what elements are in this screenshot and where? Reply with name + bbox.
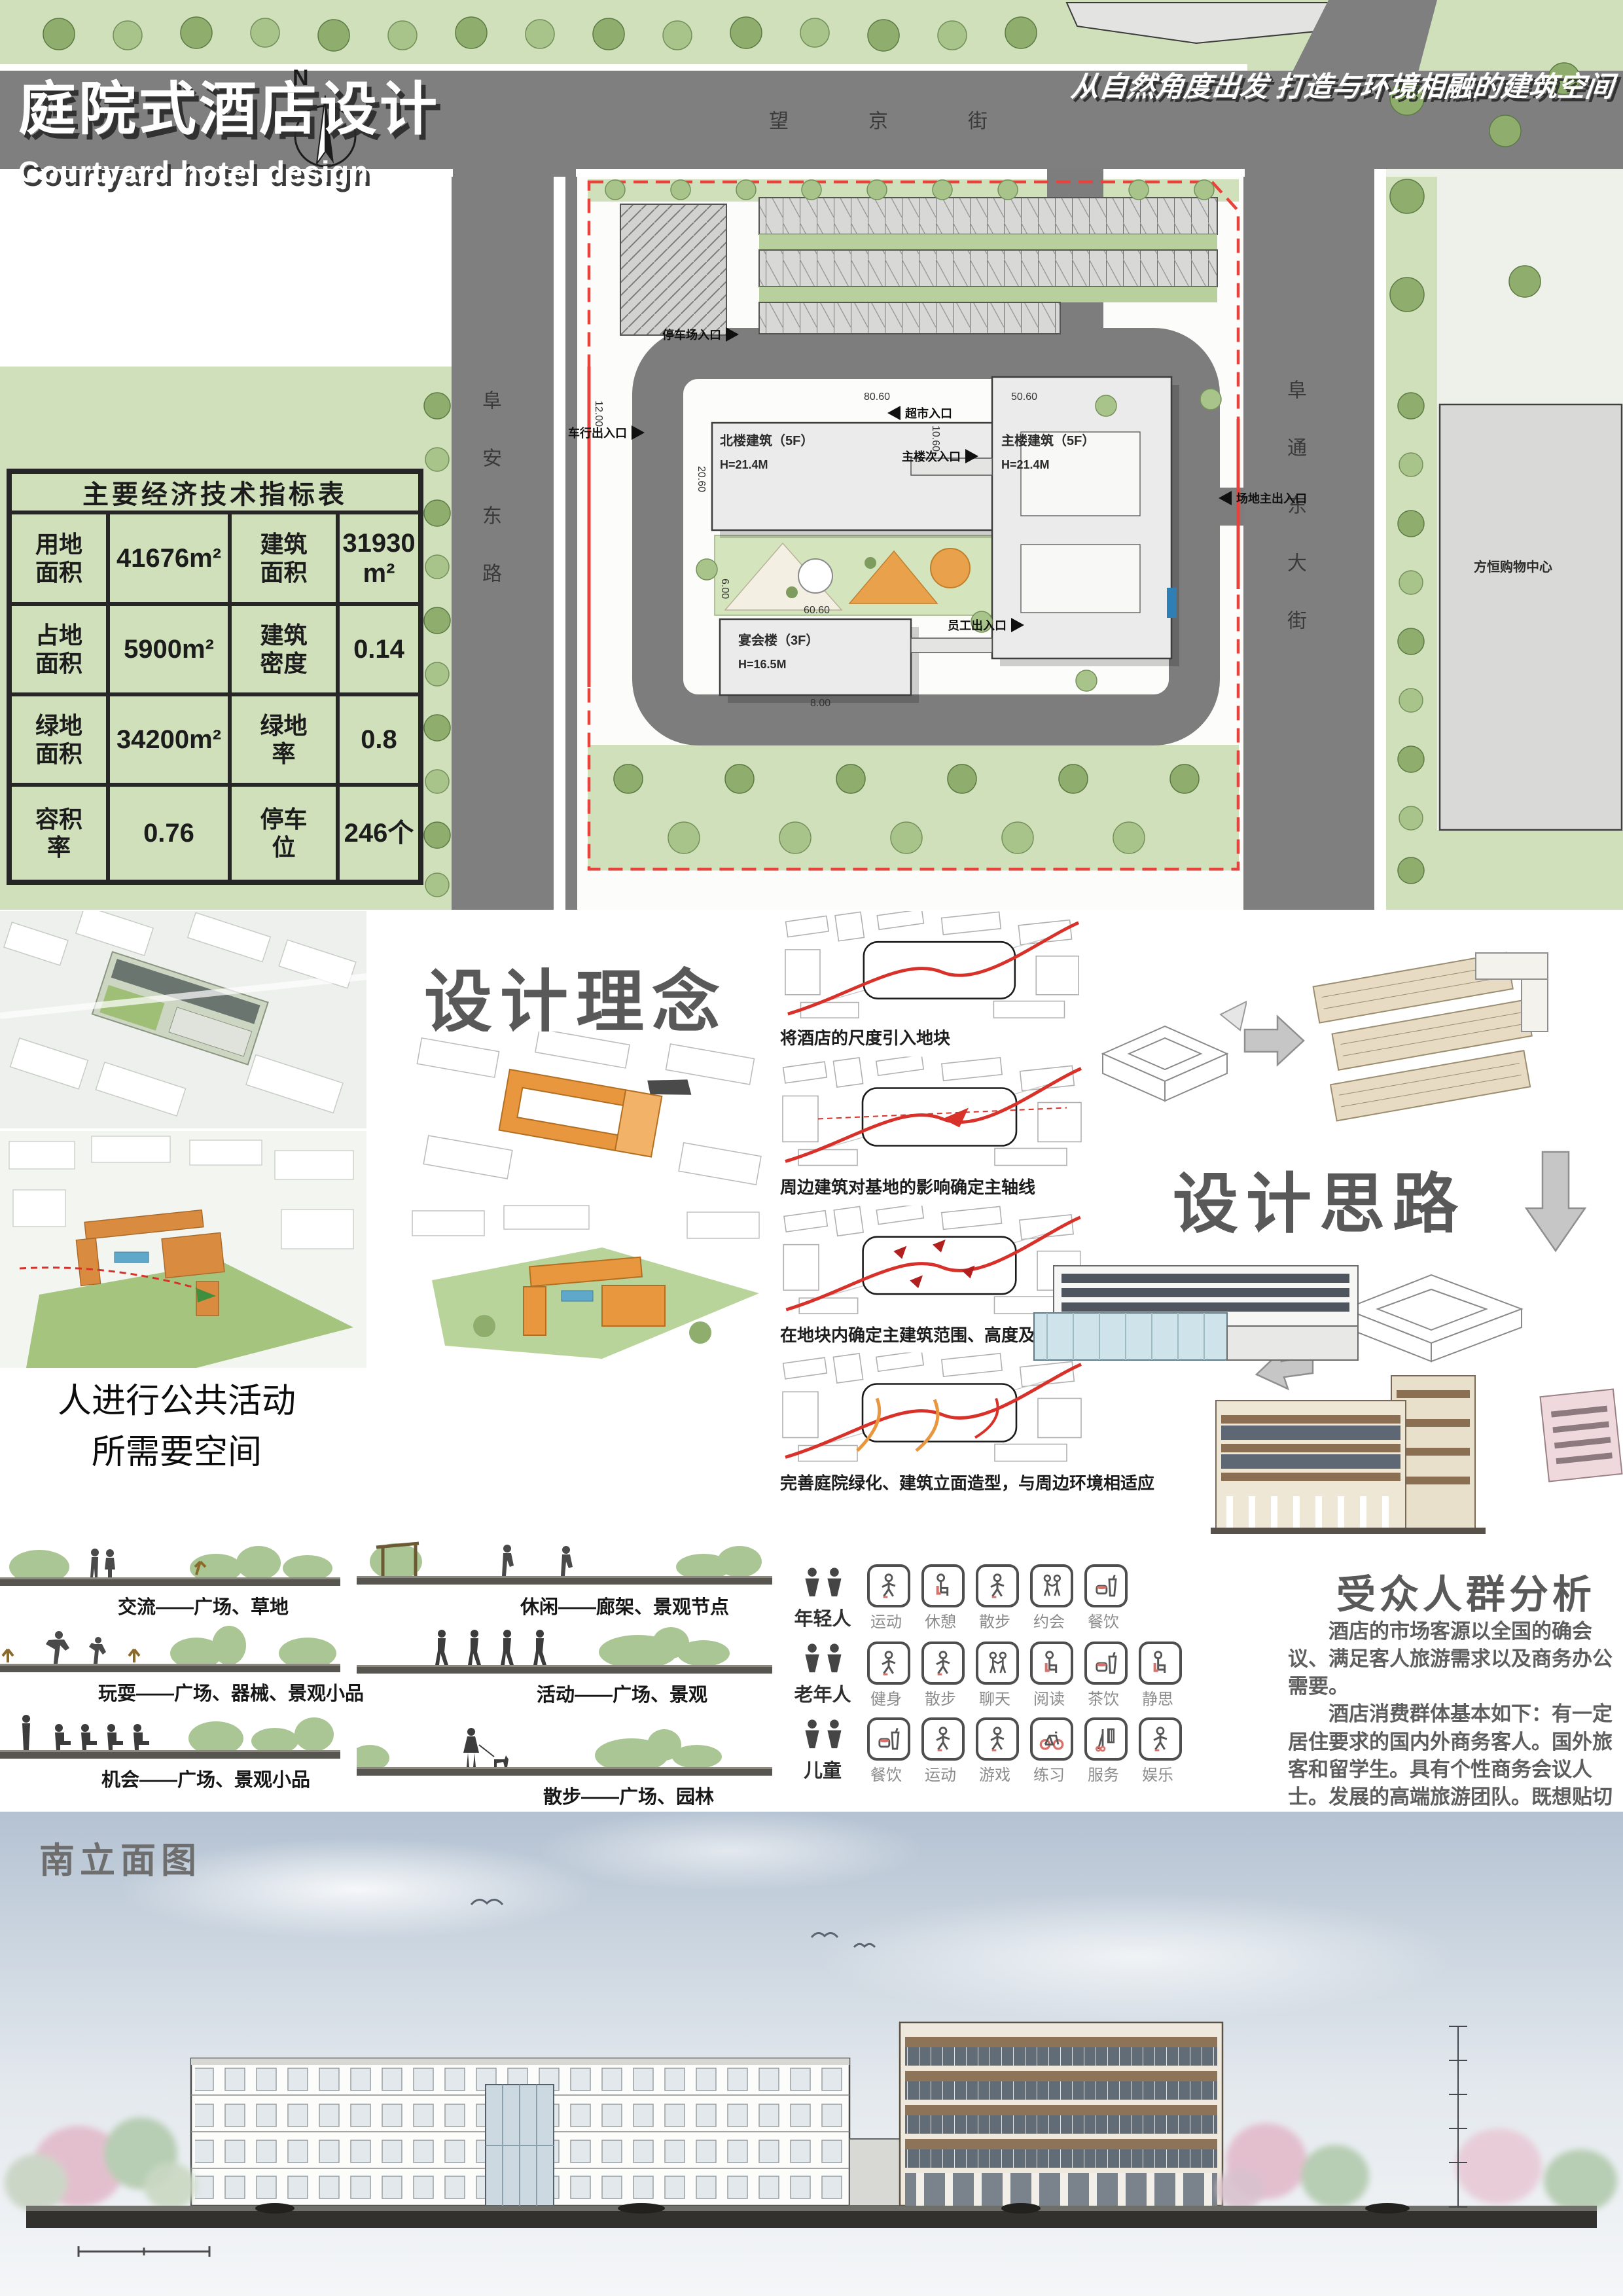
icon-caption: 静思 [1126, 1686, 1189, 1709]
icon-caption: 聊天 [963, 1686, 1026, 1709]
icon-caption: 休憩 [909, 1609, 972, 1632]
table-cell: 建筑密度 [257, 621, 311, 677]
page-subtitle: Courtyard hotel design [18, 155, 440, 189]
scale-bar [79, 2246, 209, 2257]
table-cell: 用地面积 [32, 530, 86, 586]
icon-caption: 散步 [909, 1686, 972, 1709]
table-cell: 0.8 [361, 725, 397, 755]
table-cell: 绿地面积 [32, 711, 86, 768]
dimension-label: 50.60 [1011, 391, 1037, 403]
indicators-title: 主要经济技术指标表 [10, 472, 420, 512]
concept-step-caption: 将酒店的尺度引入地块 [780, 1025, 950, 1049]
activity-icon-fun [1139, 1717, 1182, 1761]
street-name-left: 阜安东路 [475, 390, 504, 620]
entrance-label-vehicle: 车行出入口 [568, 424, 645, 441]
activity-icon-walk [976, 1564, 1019, 1607]
arrow-right-icon [965, 449, 978, 463]
group-young-icon [800, 1566, 847, 1600]
title-block: 庭院式酒店设计 Courtyard hotel design [18, 63, 440, 189]
concept-step-caption: 完善庭院绿化、建筑立面造型，与周边环境相适应 [780, 1470, 1154, 1494]
table-cell: 31930m² [340, 528, 418, 588]
mall-building [1440, 404, 1622, 830]
icon-caption: 约会 [1018, 1609, 1080, 1632]
activity-icon-tea [1084, 1641, 1128, 1685]
table-cell: 绿地率 [257, 711, 311, 768]
arrow-right-icon [1011, 618, 1024, 632]
render-perspective [0, 1131, 366, 1368]
activity-figure-activity [357, 1617, 772, 1677]
activity-icon-sport [867, 1564, 910, 1607]
activity-icon-fitness [867, 1641, 910, 1685]
icon-caption: 游戏 [963, 1762, 1026, 1785]
icon-caption: 茶饮 [1072, 1686, 1135, 1709]
table-cell: 5900m² [124, 634, 214, 664]
activity-figure-play [0, 1615, 340, 1676]
icon-caption: 散步 [963, 1609, 1026, 1632]
icon-caption: 运动 [909, 1762, 972, 1785]
mall-label: 方恒购物中心 [1474, 555, 1552, 580]
activity-icon-meditate [1139, 1641, 1182, 1685]
table-cell: 246个 [344, 818, 414, 848]
activity-icon-rest [921, 1564, 965, 1607]
dimension-label: 10.60 [929, 425, 941, 452]
analysis-paragraph: 酒店的市场客源以全国的确会议、满足客人旅游需求以及商务办公需要。 [1288, 1618, 1615, 1700]
concept-step-figure-2 [779, 1056, 1086, 1172]
concept-diagram-a [406, 1031, 772, 1195]
activity-caption: 机会——广场、景观小品 [101, 1765, 310, 1792]
page-title: 庭院式酒店设计 [18, 63, 440, 146]
activity-icon-service [1084, 1717, 1128, 1761]
dimension-label: 80.60 [864, 391, 890, 403]
icon-caption: 练习 [1018, 1762, 1080, 1785]
entrance-label-supermarket: 超市入口 [887, 404, 952, 422]
group-children-icon [800, 1717, 847, 1751]
parking-area-west [620, 204, 726, 335]
arrow-down-icon [1520, 1149, 1592, 1254]
massing-courtyard-1 [1083, 975, 1247, 1126]
parking-row-3 [759, 302, 1060, 334]
arrow-right-icon [726, 327, 739, 342]
concept-diagram-b [406, 1202, 772, 1367]
street-name-top: 望 京 街 [769, 105, 1018, 134]
dimension-label: 60.60 [804, 605, 830, 617]
activity-icon-walk2 [921, 1641, 965, 1685]
arrow-right-icon [632, 425, 645, 440]
activity-icon-food [867, 1717, 910, 1761]
dimension-label: 20.60 [695, 466, 707, 492]
presentation-board: 庭院式酒店设计 Courtyard hotel design 从自然角度出发 打… [0, 0, 1623, 2296]
group-label-elderly: 老年人 [787, 1679, 859, 1707]
icon-caption: 餐饮 [1072, 1609, 1135, 1632]
dimension-label: 12.00 [592, 401, 604, 427]
arrow-left-icon [887, 406, 901, 420]
indicators-table: 主要经济技术指标表 用地面积 41676m² 建筑面积 31930m² 占地面积… [7, 469, 423, 885]
activity-icon-dining [1084, 1564, 1128, 1607]
icon-caption: 娱乐 [1126, 1762, 1189, 1785]
pool-marker [1167, 588, 1177, 618]
activity-figure-stroll [357, 1719, 772, 1779]
slogan-text: 从自然角度出发 打造与环境相融的建筑空间 [1069, 64, 1616, 105]
table-cell: 41676m² [116, 543, 221, 573]
activity-figure-exchange [0, 1529, 340, 1589]
north-building-label: 北楼建筑（5F） H=21.4M [720, 429, 813, 476]
activity-icon-sport2 [921, 1717, 965, 1761]
street-name-right: 阜通东大街 [1280, 380, 1309, 668]
icon-caption: 餐饮 [855, 1762, 918, 1785]
north-label: N [293, 65, 309, 91]
table-cell: 34200m² [116, 725, 221, 755]
massing-slabs [1306, 941, 1558, 1152]
activity-caption: 活动——广场、景观 [537, 1679, 707, 1707]
table-cell: 停车位 [257, 805, 311, 861]
arrow-left-icon [1219, 491, 1232, 505]
group-label-young: 年轻人 [787, 1604, 859, 1631]
icon-caption: 服务 [1072, 1762, 1135, 1785]
icon-caption: 运动 [855, 1609, 918, 1632]
birds-icon [393, 1885, 982, 1977]
activity-icon-game [976, 1717, 1019, 1761]
group-label-children: 儿童 [787, 1755, 859, 1783]
table-cell: 0.76 [143, 818, 194, 848]
thinking-heading: 设计思路 [1173, 1151, 1466, 1246]
table-cell: 0.14 [353, 634, 404, 664]
activity-figure-leisure [357, 1528, 772, 1588]
group-elderly-icon [800, 1641, 847, 1676]
entrance-label-site-main: 场地主出入口 [1219, 490, 1307, 507]
pool [115, 1252, 149, 1263]
activity-icon-practice [1030, 1717, 1073, 1761]
elevation-label: 南立面图 [39, 1831, 202, 1883]
entrance-label-parking: 停车场入口 [662, 326, 739, 343]
entrance-label-staff: 员工出入口 [948, 617, 1024, 634]
render-aerial [0, 911, 366, 1128]
activity-icon-date [1030, 1564, 1073, 1607]
road-futong-east [1243, 169, 1374, 910]
concept-step-figure-1 [779, 911, 1086, 1024]
activity-caption: 休闲——廊架、景观节点 [520, 1592, 729, 1619]
activity-caption: 散步——广场、园林 [543, 1782, 714, 1809]
table-cell: 建筑面积 [257, 530, 311, 586]
dimension-label: 8.00 [810, 698, 830, 709]
parking-row-1 [759, 198, 1217, 234]
render-final-hotel [1198, 1359, 1492, 1555]
arrow-right-icon [1243, 1011, 1306, 1070]
parking-row-2 [759, 250, 1217, 287]
table-cell: 容积率 [32, 805, 86, 861]
concept-step-caption: 周边建筑对基地的影响确定主轴线 [780, 1174, 1035, 1198]
public-space-statement: 人进行公共活动 所需要空间 [20, 1376, 334, 1478]
main-building-label: 主楼建筑（5F） H=21.4M [1001, 429, 1095, 476]
table-cell: 占地面积 [32, 621, 86, 677]
activity-icon-chat [976, 1641, 1019, 1685]
icon-caption: 阅读 [1018, 1686, 1080, 1709]
audience-heading: 受众人群分析 [1336, 1563, 1596, 1620]
concept-heading: 设计理念 [424, 946, 728, 1045]
render-pink-slab [1539, 1386, 1623, 1484]
banquet-building-label: 宴会楼（3F） H=16.5M [738, 628, 819, 675]
activity-figure-opportunity [0, 1702, 340, 1762]
activity-icon-reading [1030, 1641, 1073, 1685]
dimension-label: 6.00 [719, 579, 730, 599]
icon-caption: 健身 [855, 1686, 918, 1709]
south-elevation-drawing [0, 1990, 1623, 2278]
